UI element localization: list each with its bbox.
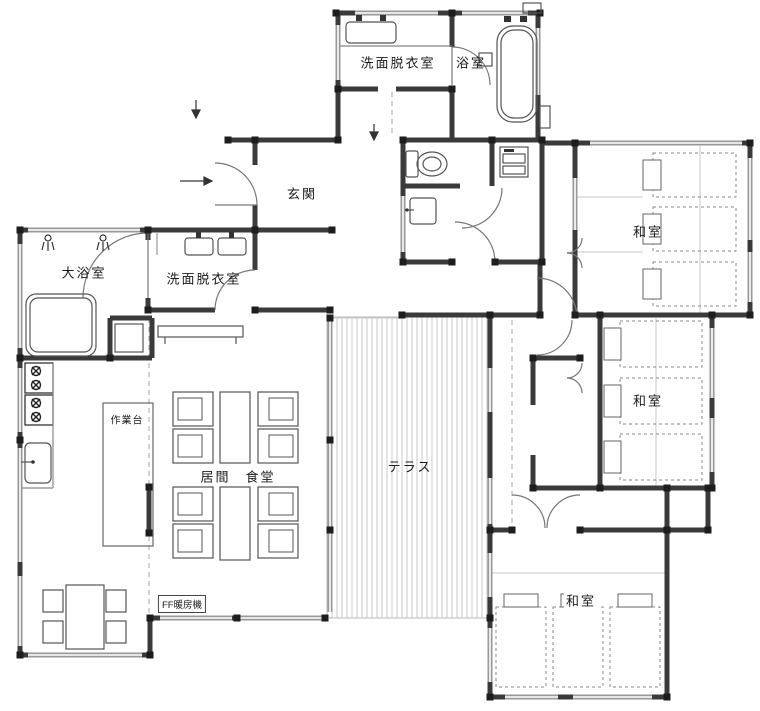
shower-fixtures [42,235,109,251]
vanity-sink-north [340,15,452,46]
vanity-sinks-west [157,232,246,255]
room-label-washitsu-e: 和室 [633,391,663,410]
toilet [406,151,447,177]
dining-table-set [43,585,126,649]
hand-sink [405,198,436,224]
washer-cabinet [500,147,528,177]
room-label-large-bath: 大浴室 [61,263,106,282]
room-label-washroom-west: 洗面脱衣室 [166,269,241,288]
label-ff-heater: FF暖房機 [158,595,206,613]
kitchen-stove [22,363,53,488]
room-label-washroom-north: 洗面脱衣室 [360,53,435,72]
room-label-terrace: テラス [388,457,433,476]
room-label-living-dining: 居間 食堂 [200,467,275,486]
room-label-entrance: 玄関 [287,184,317,203]
room-label-washitsu-se: 和室 [564,591,598,610]
room-label-work-counter: 作業台 [111,412,144,427]
room-label-bath-north: 浴室 [456,53,486,72]
floor-plan-canvas: 洗面脱衣室 浴室 玄関 大浴室 洗面脱衣室 作業台 居間 食堂 テラス 和室 和… [0,0,760,711]
bench [158,326,243,344]
floor-plan-drawing [0,0,760,711]
bathtub-large [26,294,96,356]
room-label-washitsu-ne: 和室 [633,222,663,241]
utility-closet [115,324,143,352]
kitchen-sink [21,443,51,483]
